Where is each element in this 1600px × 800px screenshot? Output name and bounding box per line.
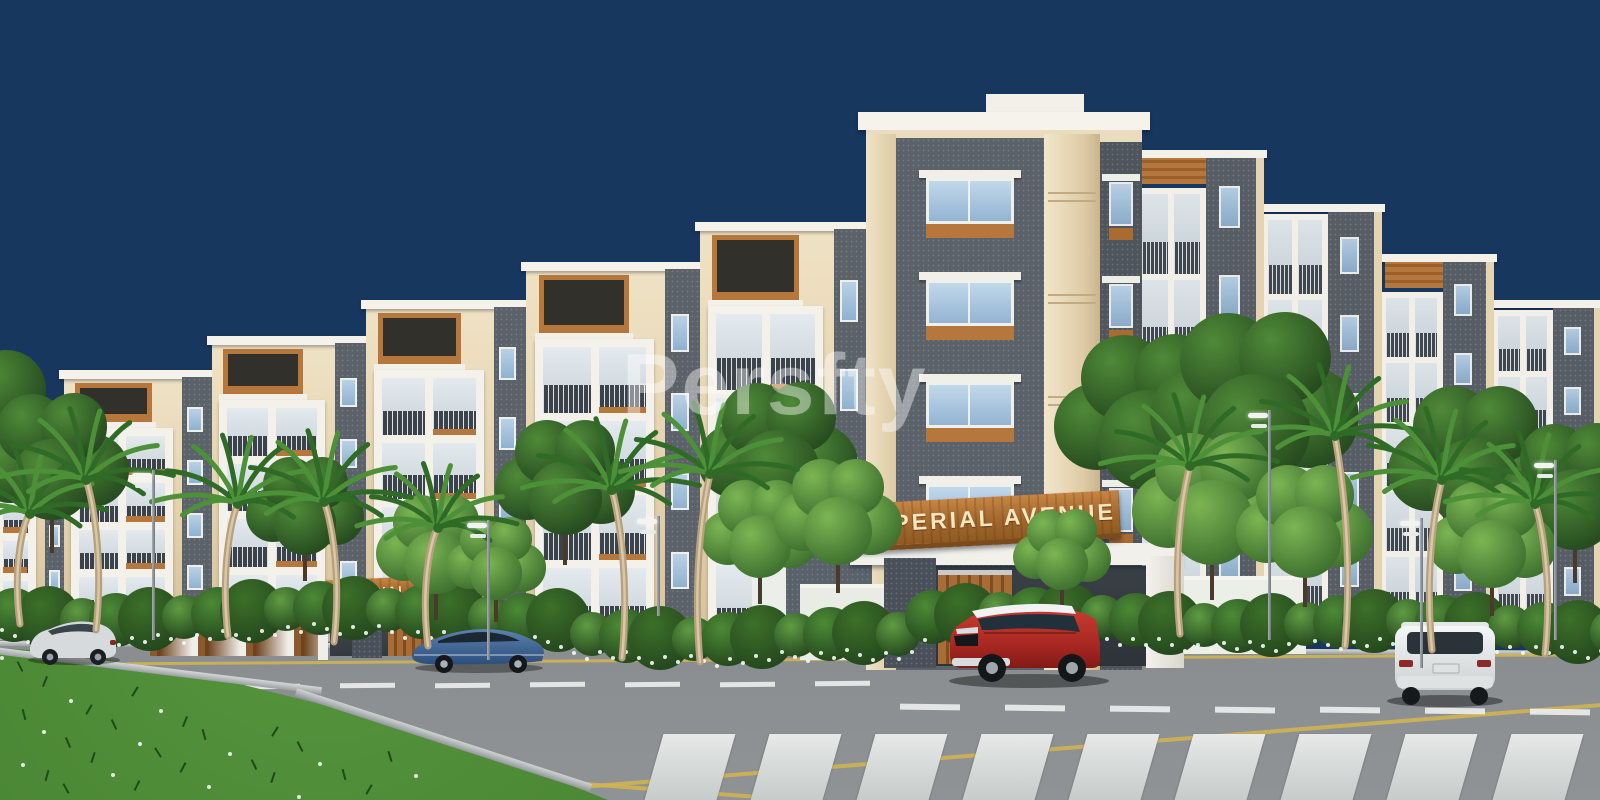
small-window	[1219, 186, 1240, 228]
grass-flower	[414, 774, 418, 778]
crosswalk-stripe	[645, 734, 736, 800]
flower-dot	[793, 655, 797, 659]
roof-pergola	[223, 349, 303, 394]
window-mullion	[968, 385, 970, 425]
window-glass	[926, 280, 1014, 326]
tree-light	[792, 473, 884, 597]
balcony-opening	[1415, 298, 1438, 357]
module-wood-band	[1141, 158, 1215, 184]
tree-crown	[804, 497, 872, 565]
flower-dot	[832, 656, 836, 660]
street-lamp-head	[1534, 463, 1554, 468]
street-lamp-head	[640, 530, 656, 534]
flower-dot	[1196, 643, 1200, 647]
balcony-railing	[1415, 333, 1438, 357]
street-lamp-head	[637, 519, 657, 524]
tower-riser	[986, 94, 1084, 114]
window-sill-wood	[926, 326, 1014, 340]
grass-flower	[318, 762, 322, 766]
balcony-railing	[382, 411, 425, 435]
module-cap	[1377, 254, 1497, 262]
crosswalk-stripe	[1281, 734, 1372, 800]
window-mullion	[968, 181, 970, 221]
balcony-opening	[1386, 298, 1409, 357]
small-window	[1219, 275, 1240, 317]
street-lamp-pole	[152, 470, 155, 640]
roof-pergola	[378, 313, 461, 364]
groove-line	[1048, 192, 1096, 194]
flower-dot	[1248, 640, 1252, 644]
flower-dot	[806, 659, 810, 663]
pillar-cap	[880, 552, 940, 558]
lane-dash	[530, 682, 585, 688]
small-window	[1564, 387, 1581, 415]
street-lamp-pole	[1554, 460, 1557, 640]
street-lamp-pole	[1420, 518, 1423, 668]
grass-flower	[21, 763, 25, 767]
grass-flower	[42, 730, 46, 734]
groove-line	[1048, 200, 1096, 202]
red-suv-car	[944, 580, 1114, 690]
grass-flower	[111, 773, 115, 777]
window-canopy	[919, 476, 1021, 484]
small-window	[1454, 284, 1472, 317]
module-wood-band	[1385, 262, 1451, 288]
grass-flower	[228, 752, 232, 756]
balcony-opening	[1498, 316, 1520, 371]
lane-dash	[900, 704, 960, 711]
window-glass	[1109, 284, 1133, 328]
flower-dot	[1183, 649, 1187, 653]
tower-parapet	[858, 112, 1150, 130]
window-sill-wood	[1109, 228, 1133, 240]
balcony-opening	[1298, 220, 1322, 294]
crosswalk-stripe	[963, 734, 1054, 800]
watermark: Persfty	[622, 336, 928, 435]
crosswalk-stripe	[1069, 734, 1160, 800]
groove-line	[1048, 302, 1096, 304]
window-glass	[1109, 182, 1133, 226]
crosswalk-stripe	[857, 734, 948, 800]
street-lamp-head	[1251, 424, 1267, 428]
balcony-opening	[382, 378, 425, 435]
small-window	[1340, 237, 1359, 274]
lane-dash	[1425, 708, 1485, 715]
zebra-crosswalk	[630, 732, 1600, 800]
grass-flower	[159, 709, 163, 713]
lane-dash	[815, 681, 870, 687]
street-lamp-head	[1248, 413, 1268, 418]
architectural-render: IMPERIAL AVENUE IMPERIAL AVENUE	[0, 0, 1600, 800]
grass-flower	[297, 795, 301, 799]
crosswalk-stripe	[1387, 734, 1478, 800]
street-lamp-head	[1403, 532, 1419, 536]
crosswalk-stripe	[1493, 734, 1584, 800]
balcony-opening	[1174, 194, 1200, 274]
street-lamp-head	[1537, 474, 1553, 478]
flower-dot	[1170, 643, 1174, 647]
roof-pergola	[539, 275, 629, 333]
crosswalk-stripe	[751, 734, 842, 800]
module-cap	[1489, 300, 1600, 308]
lane-dash	[1110, 705, 1170, 712]
lane-dash	[1320, 707, 1380, 714]
balcony-opening	[1268, 220, 1292, 294]
crosswalk-stripe	[1175, 734, 1266, 800]
small-window	[1340, 315, 1359, 352]
small-window	[1564, 327, 1581, 355]
palm-tree	[615, 430, 785, 668]
window-canopy	[919, 170, 1021, 178]
flower-dot	[858, 653, 862, 657]
lane-dash	[720, 681, 775, 687]
window-canopy	[1102, 174, 1140, 181]
roof-pergola	[712, 235, 799, 300]
small-window	[1454, 353, 1472, 386]
grass-flower	[0, 656, 4, 660]
balcony-opening	[543, 347, 591, 413]
balcony-railing	[1174, 242, 1200, 274]
window-mullion	[968, 283, 970, 323]
street-lamp-head	[470, 534, 486, 538]
groove-line	[1048, 294, 1096, 296]
street-lamp-pole	[657, 516, 660, 616]
small-window	[840, 280, 858, 322]
small-window	[499, 347, 516, 380]
balcony-opening	[1142, 194, 1168, 274]
window-glass	[926, 382, 1014, 428]
small-window	[187, 407, 203, 432]
balcony-railing	[1386, 333, 1409, 357]
balcony-opening	[433, 378, 476, 435]
balcony-railing	[543, 385, 591, 413]
small-window	[340, 378, 357, 407]
flower-dot	[897, 657, 901, 661]
window-canopy	[919, 374, 1021, 382]
balcony-railing	[1498, 349, 1520, 371]
palm-tree	[1460, 460, 1600, 660]
grass-flower	[69, 699, 73, 703]
street-lamp-pole	[487, 520, 490, 660]
balcony-railing	[1268, 265, 1292, 295]
street-lamp-head	[1400, 521, 1420, 526]
street-lamp-head	[132, 473, 152, 478]
balcony-railing	[1526, 349, 1548, 371]
wood-spandrel	[433, 429, 476, 435]
flower-dot	[871, 658, 875, 662]
window-sill-wood	[926, 224, 1014, 238]
lane-dash	[1005, 704, 1065, 711]
flower-dot	[1144, 643, 1148, 647]
wood-spandrel	[276, 450, 317, 456]
flower-dot	[130, 636, 134, 640]
flower-dot	[1118, 643, 1122, 647]
grass-flower	[138, 742, 142, 746]
small-window	[499, 417, 516, 450]
lane-dash	[435, 683, 490, 689]
lane-dash	[625, 682, 680, 688]
module-cap	[1259, 204, 1385, 212]
lane-dash	[1215, 706, 1275, 713]
module-cap	[1133, 150, 1267, 158]
balcony-opening	[1526, 316, 1548, 371]
window-canopy	[1102, 276, 1140, 283]
palm-tree	[1095, 422, 1265, 640]
street-lamp-head	[135, 484, 151, 488]
lane-dash	[1530, 709, 1590, 716]
street-lamp-head	[467, 523, 487, 528]
lane-dash	[340, 683, 395, 689]
balcony-railing	[1142, 242, 1168, 274]
window-sill-wood	[926, 428, 1014, 442]
window-glass	[926, 178, 1014, 224]
grass-flower	[207, 785, 211, 789]
flower-dot	[1235, 647, 1239, 651]
balcony-railing	[1298, 265, 1322, 295]
window-canopy	[919, 272, 1021, 280]
street-lamp-pole	[1268, 410, 1271, 640]
